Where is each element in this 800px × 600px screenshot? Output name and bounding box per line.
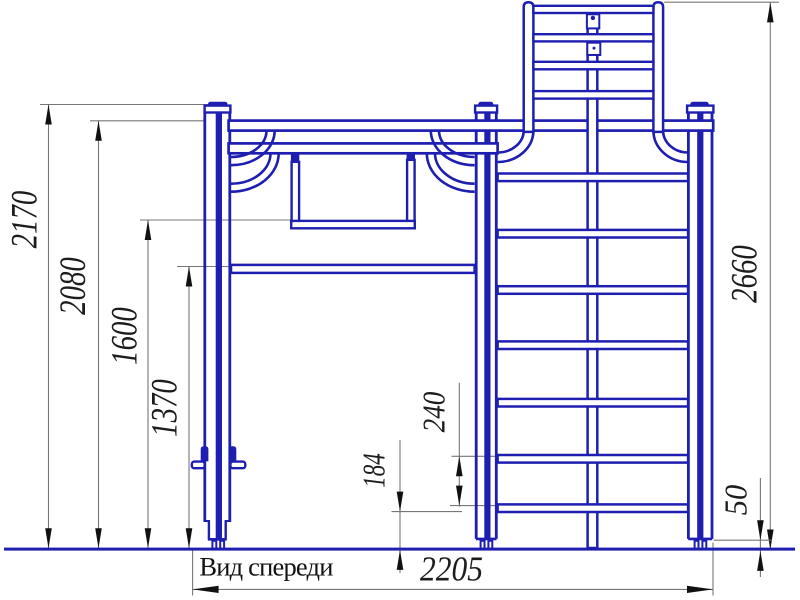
svg-text:2170: 2170 [4,190,45,248]
svg-text:1370: 1370 [144,379,185,437]
svg-text:240: 240 [418,391,452,432]
svg-text:1600: 1600 [104,307,145,365]
svg-text:184: 184 [357,453,393,488]
svg-text:2660: 2660 [724,245,765,303]
svg-text:2205: 2205 [420,550,483,589]
svg-text:Вид спереди: Вид спереди [199,552,333,582]
svg-text:2080: 2080 [53,257,94,315]
svg-text:50: 50 [718,484,754,515]
